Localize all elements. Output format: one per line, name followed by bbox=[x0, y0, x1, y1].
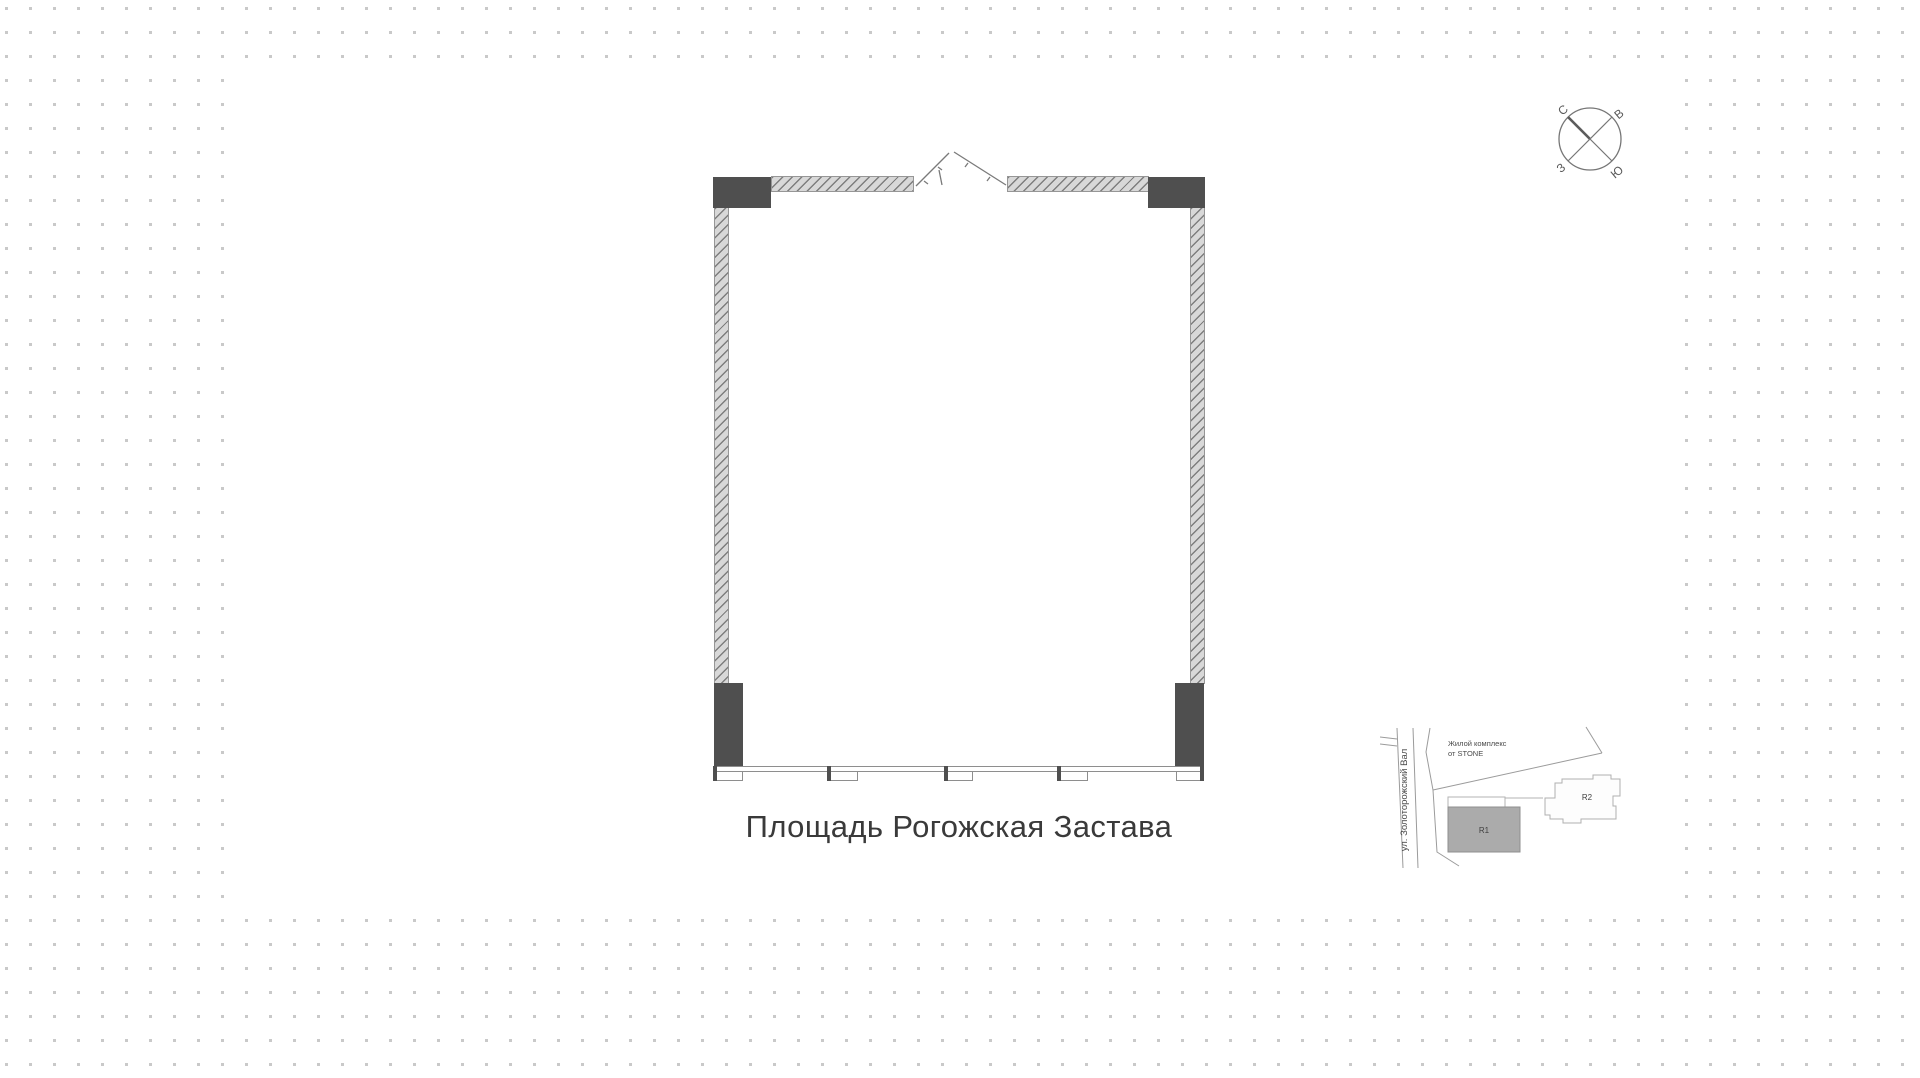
door-tick bbox=[987, 177, 990, 181]
entrance-door bbox=[880, 138, 1040, 198]
column-bottom-left bbox=[714, 683, 743, 767]
door-tick bbox=[938, 167, 942, 170]
plan-title: Площадь Рогожская Застава bbox=[713, 809, 1205, 845]
mullion-post bbox=[713, 766, 717, 781]
parcel-boundary-right bbox=[1586, 727, 1602, 753]
column-top-right bbox=[1148, 177, 1205, 208]
mullion-post bbox=[827, 766, 831, 781]
wall-right bbox=[1190, 207, 1205, 684]
mullion-post bbox=[1200, 766, 1204, 781]
window-box bbox=[1059, 771, 1088, 781]
window-box bbox=[946, 771, 973, 781]
door-tick bbox=[965, 163, 968, 167]
door-stop-mark bbox=[939, 170, 942, 185]
column-top-left bbox=[713, 177, 771, 208]
compass-south-arm bbox=[1590, 139, 1612, 161]
compass-rose: С В З Ю bbox=[1545, 90, 1645, 190]
side-street-mark bbox=[1380, 737, 1397, 739]
window-box bbox=[1176, 771, 1203, 781]
door-tick bbox=[924, 181, 928, 184]
mullion-post bbox=[1057, 766, 1061, 781]
building-r1-label: R1 bbox=[1479, 826, 1490, 835]
window-box bbox=[716, 771, 743, 781]
side-street-mark bbox=[1380, 744, 1397, 746]
building-r2-label: R2 bbox=[1582, 793, 1593, 802]
door-leaf-right bbox=[954, 152, 1006, 185]
complex-label-line1: Жилой комплекс bbox=[1448, 739, 1507, 748]
column-bottom-right bbox=[1175, 683, 1204, 767]
road-edge bbox=[1413, 728, 1418, 868]
compass-label-south: Ю bbox=[1608, 163, 1626, 182]
location-minimap: ул. Золоторожский Вал Жилой комплекс от … bbox=[1380, 700, 1670, 880]
door-leaf-left bbox=[916, 153, 949, 186]
compass-north-arm bbox=[1568, 117, 1590, 139]
compass-label-west: З bbox=[1554, 160, 1569, 175]
complex-label-line2: от STONE bbox=[1448, 749, 1483, 758]
mullion-post bbox=[944, 766, 948, 781]
street-label: ул. Золоторожский Вал bbox=[1399, 749, 1410, 852]
wall-left bbox=[714, 207, 729, 684]
window-box bbox=[829, 771, 858, 781]
podium-outline bbox=[1448, 797, 1505, 807]
